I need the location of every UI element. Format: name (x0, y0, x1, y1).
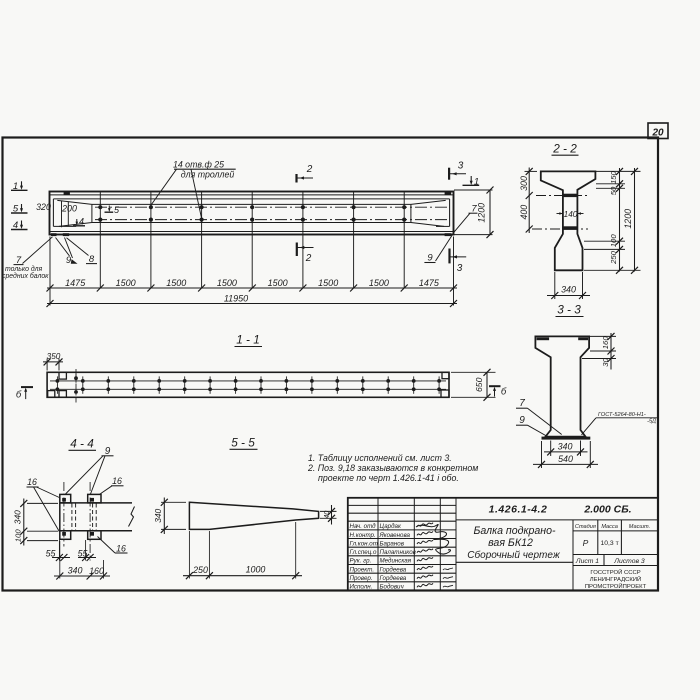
svg-text:4 - 4: 4 - 4 (70, 436, 94, 450)
svg-text:100: 100 (14, 529, 23, 543)
svg-text:ГОССТРОЙ СССР: ГОССТРОЙ СССР (590, 568, 640, 576)
svg-text:1 - 1: 1 - 1 (236, 333, 260, 347)
svg-text:Балка подкрано-: Балка подкрано- (473, 525, 556, 537)
svg-text:Р: Р (583, 538, 589, 548)
svg-text:Проект.: Проект. (350, 566, 375, 573)
svg-text:540: 540 (558, 454, 573, 464)
svg-text:Бодович: Бодович (380, 584, 405, 591)
svg-text:350: 350 (47, 352, 61, 361)
svg-text:5: 5 (13, 204, 19, 215)
svg-text:Рук. гр.: Рук. гр. (350, 558, 372, 565)
svg-text:Масшт.: Масшт. (629, 524, 650, 530)
svg-text:вая БК12: вая БК12 (488, 537, 533, 549)
svg-text:Исполн.: Исполн. (350, 584, 373, 591)
svg-text:1500: 1500 (318, 278, 338, 288)
svg-text:140: 140 (564, 210, 578, 219)
svg-text:1000: 1000 (246, 565, 266, 575)
svg-text:320: 320 (36, 202, 51, 212)
svg-text:3: 3 (458, 161, 464, 172)
svg-text:Гл.кон.от: Гл.кон.от (350, 540, 378, 547)
svg-text:2: 2 (305, 253, 312, 264)
svg-text:Стадия: Стадия (575, 524, 596, 530)
svg-text:400: 400 (519, 205, 529, 220)
svg-text:16: 16 (112, 476, 122, 486)
svg-text:ПРОМСТРОЙПРОЕКТ: ПРОМСТРОЙПРОЕКТ (585, 582, 647, 590)
svg-text:Н.контр.: Н.контр. (350, 532, 376, 539)
svg-text:40: 40 (322, 511, 331, 519)
svg-text:1475: 1475 (419, 278, 440, 288)
svg-text:б: б (16, 389, 22, 400)
svg-text:1500: 1500 (268, 278, 288, 288)
svg-text:Цардак: Цардак (380, 523, 402, 530)
svg-text:1475: 1475 (65, 278, 86, 288)
svg-text:-5Д: -5Д (647, 418, 656, 424)
svg-text:Масса: Масса (601, 524, 618, 530)
svg-text:55: 55 (46, 548, 56, 558)
svg-text:16: 16 (27, 477, 37, 487)
svg-text:Мединская: Мединская (380, 558, 412, 565)
svg-text:9: 9 (519, 415, 525, 426)
svg-text:Гордеева: Гордеева (380, 575, 407, 582)
svg-text:11950: 11950 (224, 293, 248, 303)
svg-text:5 - 5: 5 - 5 (231, 435, 255, 449)
svg-text:3 - 3: 3 - 3 (557, 303, 581, 317)
svg-text:340: 340 (68, 565, 83, 575)
svg-text:30: 30 (601, 358, 610, 367)
svg-text:ГОСТ-5264-80-Н1-: ГОСТ-5264-80-Н1- (598, 412, 646, 418)
svg-text:160: 160 (601, 336, 610, 350)
svg-text:Нач. отд: Нач. отд (350, 523, 377, 530)
svg-text:Палатников: Палатников (380, 549, 417, 556)
svg-text:2 - 2: 2 - 2 (552, 141, 577, 155)
svg-text:340: 340 (153, 508, 163, 522)
svg-text:50: 50 (609, 186, 618, 195)
svg-text:4: 4 (13, 220, 18, 231)
svg-text:Листов 3: Листов 3 (613, 558, 645, 565)
svg-text:7: 7 (471, 203, 477, 214)
svg-text:1500: 1500 (166, 278, 186, 288)
svg-text:1500: 1500 (369, 278, 389, 288)
svg-text:б: б (501, 387, 507, 398)
svg-text:ЛЕНИНГРАДСКИЙ: ЛЕНИНГРАДСКИЙ (590, 575, 642, 583)
svg-text:7: 7 (519, 398, 525, 409)
svg-text:4: 4 (79, 216, 84, 226)
svg-text:1. Таблицу исполнений см. лис: 1. Таблицу исполнений см. лист 3. (308, 453, 452, 463)
svg-text:1500: 1500 (116, 278, 136, 288)
svg-text:250: 250 (192, 565, 208, 575)
svg-text:1.426.1-4.2: 1.426.1-4.2 (489, 504, 548, 516)
svg-text:10,3 т: 10,3 т (600, 540, 618, 547)
svg-text:160: 160 (89, 566, 104, 576)
svg-text:Провер.: Провер. (350, 575, 373, 582)
svg-text:250: 250 (609, 250, 618, 265)
svg-text:1: 1 (474, 176, 479, 187)
svg-text:650: 650 (474, 377, 484, 392)
svg-text:340: 340 (13, 510, 23, 524)
svg-text:Яковенова: Яковенова (379, 532, 411, 539)
svg-text:3: 3 (457, 263, 463, 274)
svg-text:1200: 1200 (623, 209, 633, 229)
svg-text:200: 200 (61, 203, 77, 213)
svg-text:Лист 1: Лист 1 (575, 558, 599, 565)
svg-text:1500: 1500 (217, 278, 237, 288)
svg-text:9: 9 (105, 446, 111, 457)
svg-text:20: 20 (651, 128, 664, 139)
svg-text:2. Поз. 9,18 заказываются в ко: 2. Поз. 9,18 заказываются в конкретном (307, 463, 478, 473)
svg-text:проекте по черт 1.426.1-41 і о: проекте по черт 1.426.1-41 і обо. (318, 473, 459, 483)
svg-text:средних балок: средних балок (2, 272, 49, 280)
svg-text:1: 1 (13, 181, 18, 192)
svg-text:16: 16 (116, 543, 126, 553)
svg-text:150: 150 (609, 170, 618, 184)
svg-text:340: 340 (561, 285, 576, 295)
svg-text:2: 2 (306, 164, 313, 175)
svg-text:1200: 1200 (477, 203, 487, 223)
svg-text:100: 100 (609, 234, 618, 248)
svg-text:Гл.спец.о: Гл.спец.о (350, 549, 377, 556)
svg-text:Баранов: Баранов (380, 540, 405, 547)
svg-text:340: 340 (558, 441, 573, 451)
svg-text:Сборочный чертеж: Сборочный чертеж (467, 549, 561, 561)
svg-text:300: 300 (519, 176, 529, 191)
svg-text:только для: только для (5, 265, 43, 273)
svg-text:14 отв.ф 25: 14 отв.ф 25 (173, 159, 224, 169)
svg-text:Гордеева: Гордеева (380, 566, 407, 573)
svg-text:2.000 СБ.: 2.000 СБ. (583, 504, 631, 516)
svg-text:9: 9 (427, 253, 433, 264)
svg-text:для троллей: для троллей (181, 169, 235, 179)
svg-text:9: 9 (66, 255, 72, 266)
